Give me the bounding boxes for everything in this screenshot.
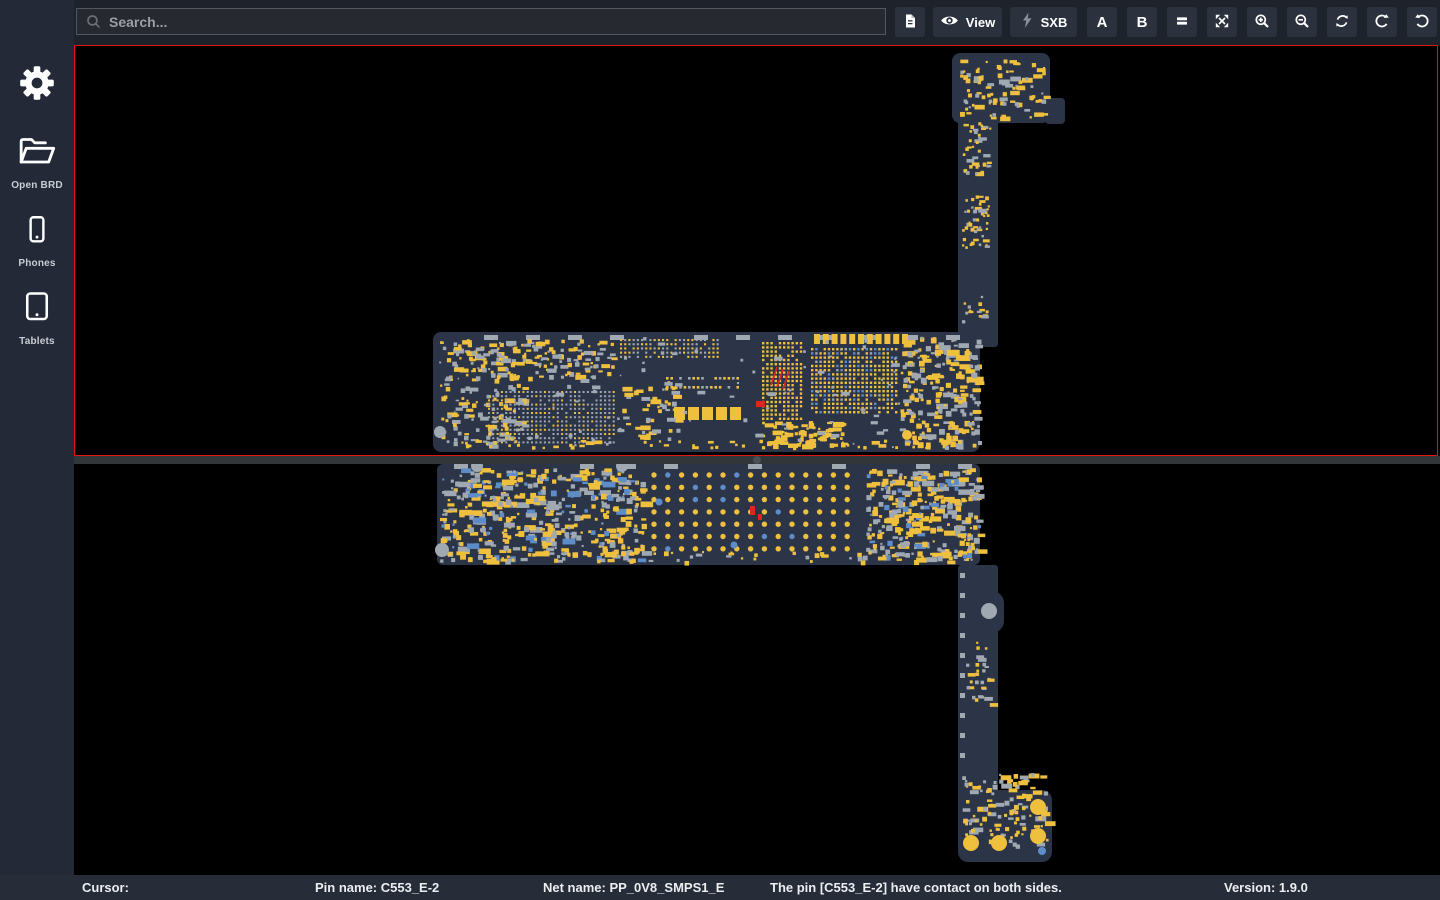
split-view-button[interactable] — [1167, 7, 1197, 37]
search-input[interactable] — [76, 8, 886, 35]
sidebar-item-tablets[interactable]: Tablets — [19, 289, 55, 347]
tablet-icon — [19, 289, 55, 328]
view-button[interactable]: View — [933, 7, 1002, 37]
view-button-label: View — [966, 15, 995, 30]
zoom-out-button[interactable] — [1287, 7, 1317, 37]
toolbar: View SXB A B — [74, 0, 1440, 45]
view-splitter[interactable] — [74, 456, 1440, 464]
equals-icon — [1174, 13, 1190, 32]
expand-icon — [1214, 13, 1230, 32]
sxb-button-label: SXB — [1041, 15, 1068, 30]
phone-icon — [20, 213, 54, 250]
status-net-name: Net name: PP_0V8_SMPS1_E — [543, 875, 724, 900]
zoom-out-icon — [1294, 13, 1310, 32]
sxb-button[interactable]: SXB — [1010, 7, 1077, 37]
board-canvas[interactable] — [74, 45, 1440, 875]
eye-icon — [940, 13, 959, 31]
side-a-button[interactable]: A — [1087, 7, 1117, 37]
zoom-in-button[interactable] — [1247, 7, 1277, 37]
sidebar-item-label: Phones — [18, 258, 55, 269]
sidebar-item-label: Tablets — [19, 336, 55, 347]
status-message: The pin [C553_E-2] have contact on both … — [770, 875, 1062, 900]
status-cursor: Cursor: — [82, 875, 129, 900]
settings-button[interactable] — [18, 64, 56, 105]
fit-screen-button[interactable] — [1207, 7, 1237, 37]
open-folder-icon — [17, 135, 57, 172]
status-pin-name: Pin name: C553_E-2 — [315, 875, 439, 900]
lightning-icon — [1020, 12, 1034, 32]
rotate-cw-icon — [1374, 13, 1390, 32]
sync-icon — [1334, 13, 1350, 32]
sidebar: Open BRD Phones Tablets — [0, 0, 74, 900]
side-a-label: A — [1097, 14, 1108, 31]
zoom-in-icon — [1254, 13, 1270, 32]
sidebar-item-label: Open BRD — [11, 180, 63, 191]
search-box — [76, 8, 886, 35]
rotate-ccw-button[interactable] — [1407, 7, 1437, 37]
gear-icon — [18, 64, 56, 105]
status-bar: Cursor: Pin name: C553_E-2 Net name: PP_… — [0, 875, 1440, 900]
rotate-ccw-icon — [1414, 13, 1430, 32]
board-view-top[interactable] — [74, 45, 1438, 456]
sidebar-item-open-brd[interactable]: Open BRD — [11, 135, 63, 191]
board-view-bottom[interactable] — [74, 464, 1440, 875]
sidebar-item-phones[interactable]: Phones — [18, 213, 55, 269]
status-version: Version: 1.9.0 — [1224, 875, 1308, 900]
document-button[interactable] — [895, 7, 925, 37]
sync-button[interactable] — [1327, 7, 1357, 37]
rotate-cw-button[interactable] — [1367, 7, 1397, 37]
view-splitter-handle[interactable] — [753, 456, 761, 464]
side-b-label: B — [1137, 14, 1148, 31]
brd-viewer-app: Open BRD Phones Tablets — [0, 0, 1440, 900]
side-b-button[interactable]: B — [1127, 7, 1157, 37]
file-icon — [902, 13, 918, 32]
search-icon — [85, 13, 102, 35]
